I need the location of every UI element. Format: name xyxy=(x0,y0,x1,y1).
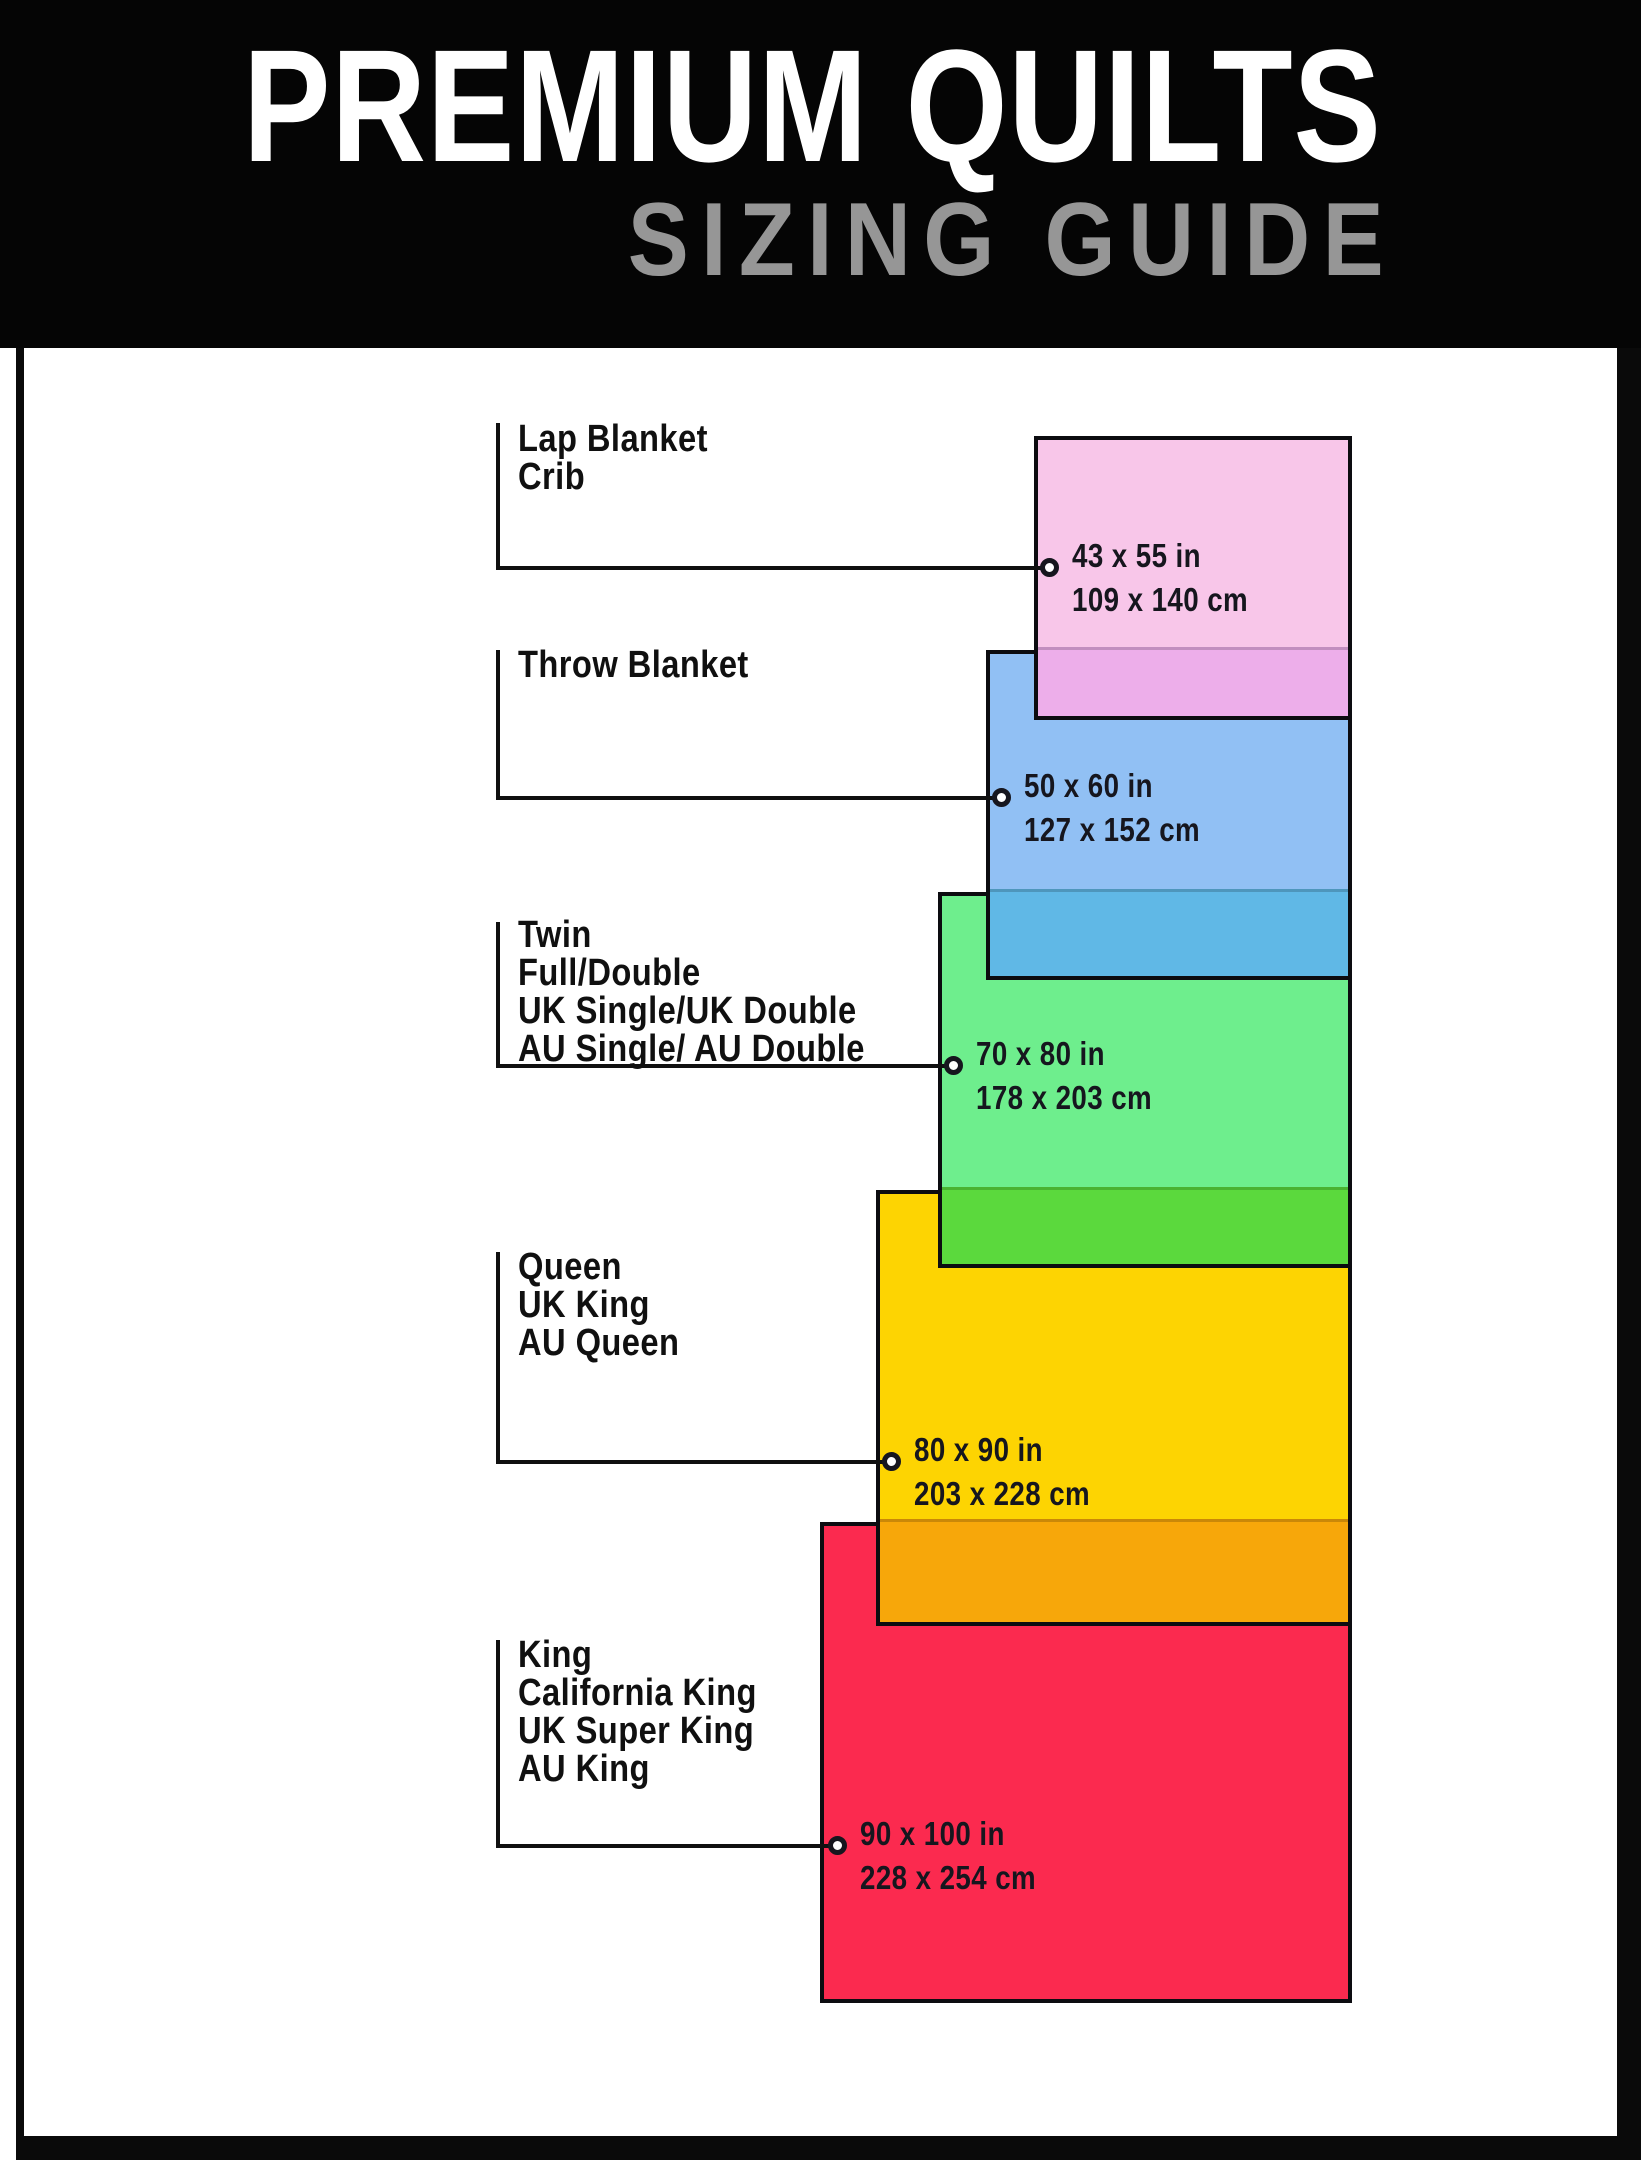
label-line: Crib xyxy=(518,458,708,496)
connector-line-king xyxy=(496,1844,830,1848)
size-annotation-throw: 50 x 60 in 127 x 152 cm xyxy=(1024,764,1200,852)
label-line: King xyxy=(518,1636,757,1674)
connector-dot-king xyxy=(828,1836,847,1855)
bracket-vertical-lap xyxy=(496,423,500,570)
label-line: AU Single/ AU Double xyxy=(518,1030,865,1068)
size-inches: 80 x 90 in xyxy=(914,1428,1090,1472)
infographic-page: PREMIUM QUILTS SIZING GUIDE Lap Blanket … xyxy=(0,0,1641,2160)
label-queen-group: Queen UK King AU Queen xyxy=(518,1248,679,1362)
overlap-band-lap-over-throw xyxy=(1038,647,1348,716)
label-line: UK Super King xyxy=(518,1712,757,1750)
frame-border-bottom xyxy=(16,2136,1641,2160)
connector-line-throw xyxy=(496,796,994,800)
connector-dot-throw xyxy=(992,788,1011,807)
label-line: AU Queen xyxy=(518,1324,679,1362)
bracket-vertical-king xyxy=(496,1640,500,1848)
bracket-vertical-twin xyxy=(496,922,500,1068)
page-title: PREMIUM QUILTS xyxy=(243,26,1382,186)
size-cm: 203 x 228 cm xyxy=(914,1472,1090,1516)
label-line: Full/Double xyxy=(518,954,865,992)
size-cm: 127 x 152 cm xyxy=(1024,808,1200,852)
label-king-group: King California King UK Super King AU Ki… xyxy=(518,1636,757,1788)
frame-border-left xyxy=(16,348,24,2136)
label-line: Lap Blanket xyxy=(518,420,708,458)
label-line: California King xyxy=(518,1674,757,1712)
connector-line-twin xyxy=(496,1064,946,1068)
connector-line-queen xyxy=(496,1460,884,1464)
label-line: UK Single/UK Double xyxy=(518,992,865,1030)
label-line: AU King xyxy=(518,1750,757,1788)
connector-dot-lap xyxy=(1040,558,1059,577)
connector-line-lap xyxy=(496,566,1042,570)
size-annotation-king: 90 x 100 in 228 x 254 cm xyxy=(860,1812,1036,1900)
label-lap-blanket: Lap Blanket Crib xyxy=(518,420,708,496)
size-inches: 70 x 80 in xyxy=(976,1032,1152,1076)
overlap-band-queen-over-king xyxy=(880,1519,1348,1622)
size-inches: 50 x 60 in xyxy=(1024,764,1200,808)
label-twin-group: Twin Full/Double UK Single/UK Double AU … xyxy=(518,916,865,1068)
bracket-vertical-queen xyxy=(496,1252,500,1464)
size-annotation-lap: 43 x 55 in 109 x 140 cm xyxy=(1072,534,1248,622)
label-line: UK King xyxy=(518,1286,679,1324)
overlap-band-throw-over-twin xyxy=(990,889,1348,976)
overlap-band-twin-over-queen xyxy=(942,1187,1348,1264)
label-line: Throw Blanket xyxy=(518,646,749,684)
size-annotation-queen: 80 x 90 in 203 x 228 cm xyxy=(914,1428,1090,1516)
page-subtitle: SIZING GUIDE xyxy=(628,188,1396,292)
size-cm: 228 x 254 cm xyxy=(860,1856,1036,1900)
size-inches: 90 x 100 in xyxy=(860,1812,1036,1856)
label-throw-blanket: Throw Blanket xyxy=(518,646,749,684)
size-cm: 178 x 203 cm xyxy=(976,1076,1152,1120)
size-cm: 109 x 140 cm xyxy=(1072,578,1248,622)
label-line: Twin xyxy=(518,916,865,954)
bracket-vertical-throw xyxy=(496,650,500,800)
connector-dot-queen xyxy=(882,1452,901,1471)
label-line: Queen xyxy=(518,1248,679,1286)
connector-dot-twin xyxy=(944,1056,963,1075)
header-banner: PREMIUM QUILTS SIZING GUIDE xyxy=(0,0,1641,348)
size-inches: 43 x 55 in xyxy=(1072,534,1248,578)
frame-border-right xyxy=(1617,348,1641,2160)
size-annotation-twin: 70 x 80 in 178 x 203 cm xyxy=(976,1032,1152,1120)
